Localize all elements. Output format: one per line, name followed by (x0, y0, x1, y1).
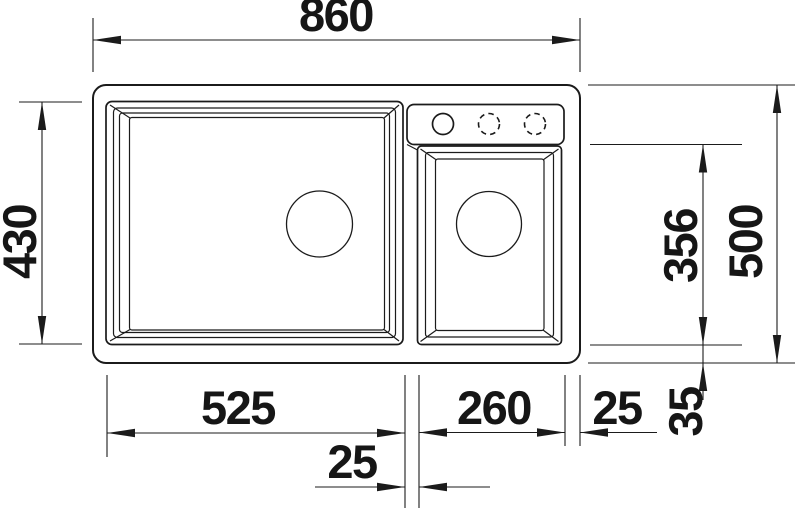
left-bowl-rim (106, 102, 403, 345)
dimension-label: 356 (654, 209, 707, 283)
left-bowl-corner-bevels (110, 105, 399, 341)
right-drain-circle (457, 192, 522, 257)
dimension-left-bowl-depth: 430 (0, 102, 82, 344)
faucet-hole-icon (433, 114, 454, 135)
technical-drawing: 860 430 356 500 (0, 0, 800, 510)
left-bowl (106, 102, 403, 345)
left-drain-circle (287, 191, 353, 257)
faucet-deck-outline (407, 105, 564, 145)
arrowhead-icon (38, 102, 46, 130)
right-bowl-rim (418, 146, 562, 345)
left-bowl-step-outer (114, 108, 396, 338)
faucet-hole-optional-icon (479, 114, 500, 135)
right-bowl-corner-bevels (421, 149, 559, 342)
arrowhead-icon (773, 85, 781, 113)
dimension-bottom-edge-margin: 35 (659, 345, 712, 437)
arrowhead-icon (699, 145, 707, 173)
arrowhead-icon (699, 317, 707, 345)
dimension-label: 260 (457, 381, 531, 434)
dimension-label: 500 (719, 205, 772, 279)
left-bowl-step-inner (120, 113, 390, 333)
dimension-label: 525 (201, 381, 275, 434)
dimension-right-bowl-width: 260 (419, 381, 565, 437)
arrowhead-icon (699, 363, 707, 391)
arrowhead-icon (419, 483, 447, 491)
arrowhead-icon (537, 428, 565, 436)
faucet-deck (407, 105, 564, 151)
arrowhead-icon (419, 428, 447, 436)
sink-body (93, 85, 580, 363)
dimension-right-edge-margin: 25 (580, 381, 657, 437)
dimension-label: 25 (592, 381, 642, 434)
dimension-label: 25 (327, 435, 377, 488)
dimension-overall-width: 860 (93, 0, 580, 72)
sink-outer-outline (93, 85, 580, 363)
dimension-left-bowl-width: 525 (107, 381, 405, 437)
arrowhead-icon (773, 335, 781, 363)
arrowhead-icon (377, 429, 405, 437)
arrowhead-icon (377, 483, 405, 491)
arrowhead-icon (552, 36, 580, 44)
arrowhead-icon (38, 316, 46, 344)
dimension-label: 35 (659, 387, 712, 437)
right-bowl (418, 146, 562, 345)
right-bowl-floor (436, 159, 545, 331)
right-bowl-step (426, 153, 554, 338)
arrowhead-icon (93, 36, 121, 44)
faucet-hole-optional-icon (525, 114, 546, 135)
dimension-label: 430 (0, 205, 46, 279)
dimension-divider-width: 25 (315, 435, 490, 491)
arrowhead-icon (107, 429, 135, 437)
left-bowl-floor (130, 118, 385, 331)
dimension-label: 860 (299, 0, 373, 41)
